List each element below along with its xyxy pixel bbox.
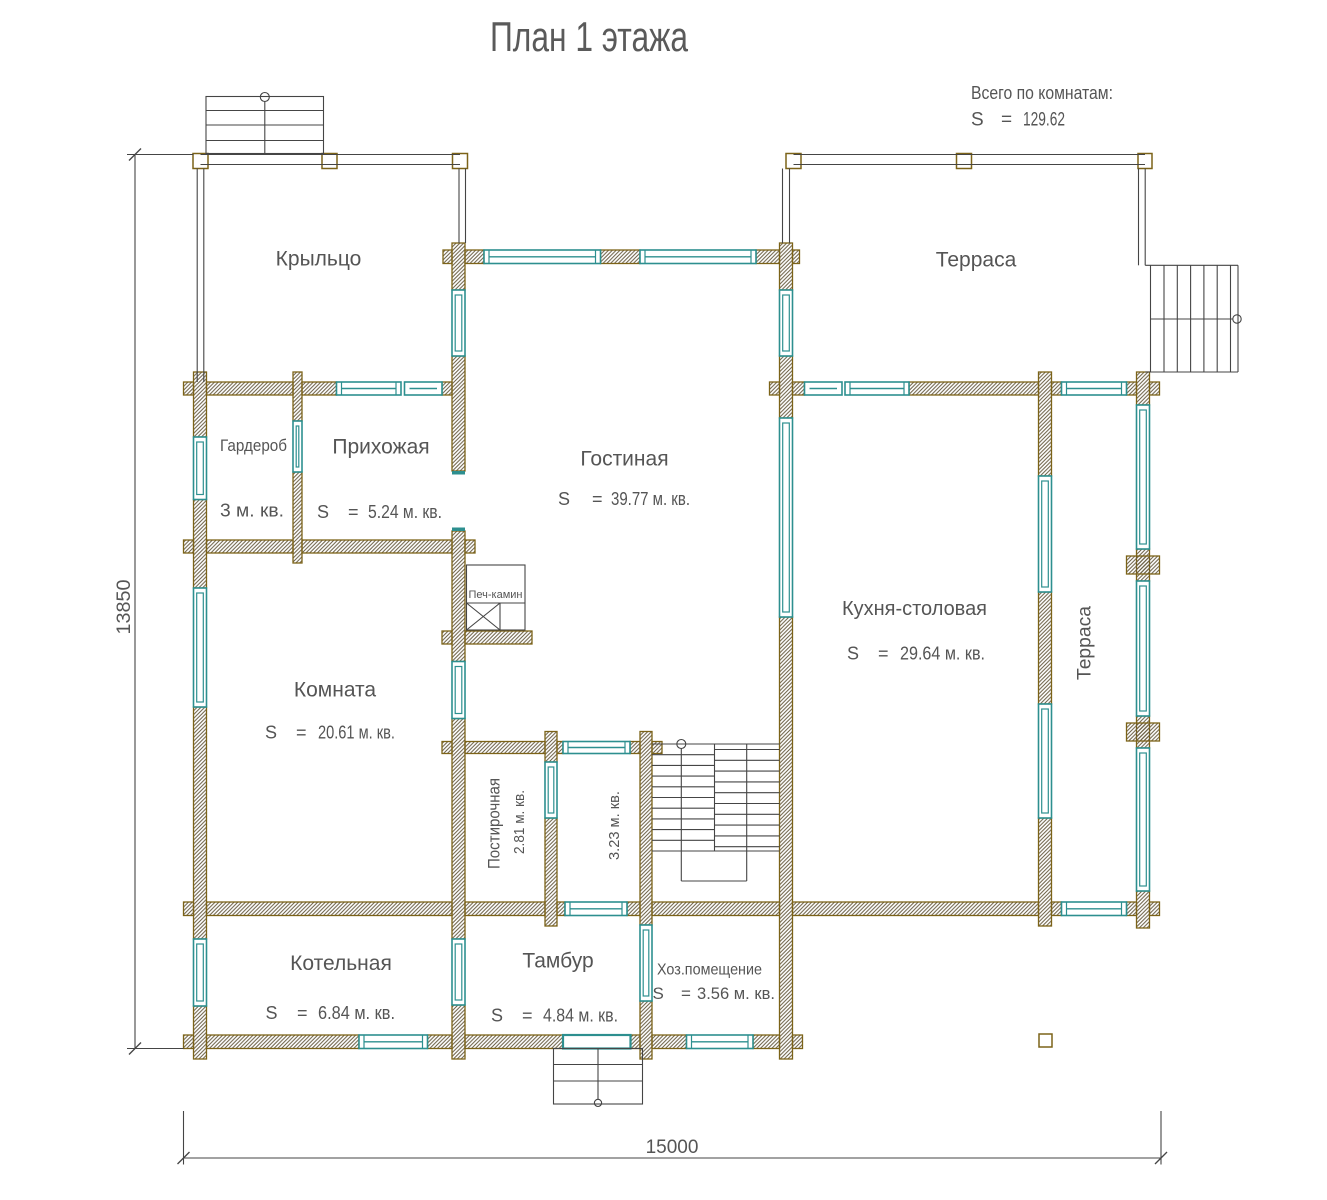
svg-text:39.77 м. кв.: 39.77 м. кв. <box>611 489 690 509</box>
svg-text:=: = <box>878 644 889 664</box>
svg-text:=: = <box>297 1003 308 1023</box>
svg-text:Гардероб: Гардероб <box>220 436 287 455</box>
svg-text:Прихожая: Прихожая <box>332 436 429 459</box>
svg-text:4.84 м. кв.: 4.84 м. кв. <box>543 1006 618 1026</box>
svg-text:Терраса: Терраса <box>936 249 1017 272</box>
svg-text:S: S <box>491 1006 503 1026</box>
svg-text:S: S <box>558 489 570 509</box>
svg-text:=: = <box>522 1006 533 1026</box>
svg-text:S: S <box>847 644 859 664</box>
svg-text:13850: 13850 <box>114 580 135 635</box>
svg-text:20.61 м. кв.: 20.61 м. кв. <box>318 723 395 743</box>
svg-text:Терраса: Терраса <box>1075 606 1096 680</box>
svg-text:15000: 15000 <box>646 1137 699 1158</box>
svg-text:3.56 м. кв.: 3.56 м. кв. <box>697 984 775 1003</box>
svg-text:Хоз.помещение: Хоз.помещение <box>657 962 762 979</box>
svg-text:5.24 м. кв.: 5.24 м. кв. <box>368 502 442 522</box>
svg-text:Гостиная: Гостиная <box>580 448 668 471</box>
svg-text:Кухня-столовая: Кухня-столовая <box>842 598 987 620</box>
svg-text:Комната: Комната <box>294 679 377 702</box>
svg-text:S: S <box>971 110 984 131</box>
svg-text:S: S <box>317 502 329 522</box>
svg-text:3.23 м. кв.: 3.23 м. кв. <box>606 791 623 860</box>
svg-text:Котельная: Котельная <box>290 952 392 975</box>
svg-text:29.64 м. кв.: 29.64 м. кв. <box>900 644 985 664</box>
svg-text:Печ-камин: Печ-камин <box>468 589 522 601</box>
svg-text:6.84 м. кв.: 6.84 м. кв. <box>318 1003 395 1023</box>
svg-text:Крыльцо: Крыльцо <box>276 248 362 271</box>
svg-text:=: = <box>1001 110 1012 131</box>
svg-text:129.62: 129.62 <box>1023 110 1065 131</box>
svg-text:=: = <box>681 984 691 1003</box>
svg-text:S: S <box>266 1003 278 1023</box>
svg-text:=: = <box>348 502 359 522</box>
svg-text:3 м. кв.: 3 м. кв. <box>220 501 284 521</box>
svg-text:Постирочная: Постирочная <box>486 778 504 869</box>
svg-text:S: S <box>653 984 664 1003</box>
svg-text:План 1 этажа: План 1 этажа <box>490 13 688 60</box>
svg-text:2.81 м. кв.: 2.81 м. кв. <box>511 790 528 854</box>
svg-text:=: = <box>592 489 603 509</box>
svg-text:=: = <box>296 723 307 743</box>
svg-text:Всего по комнатам:: Всего по комнатам: <box>971 83 1113 103</box>
svg-text:Тамбур: Тамбур <box>522 950 593 973</box>
svg-text:S: S <box>265 723 277 743</box>
